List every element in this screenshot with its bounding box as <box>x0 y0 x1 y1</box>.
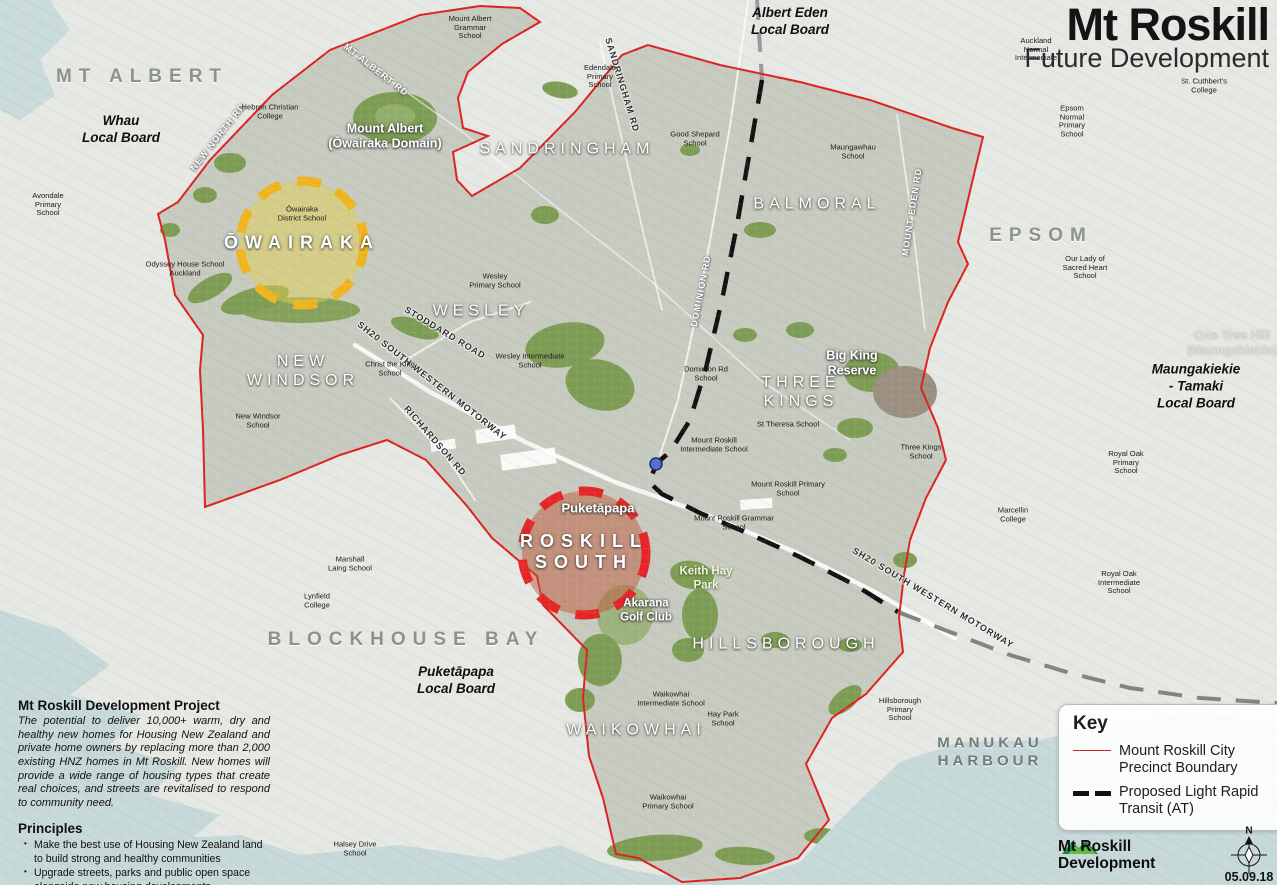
key-heading: Key <box>1073 713 1277 735</box>
lrt-stop-marker <box>650 458 662 470</box>
compass-north-label: N <box>1245 826 1252 837</box>
project-description: The potential to deliver 10,000+ warm, d… <box>18 715 270 810</box>
owairaka-focus-circle <box>240 181 364 305</box>
key-item-light-rapid-transit: Proposed Light Rapid Transit (AT) <box>1073 784 1277 817</box>
project-heading: Mt Roskill Development Project <box>18 698 270 713</box>
black-dashed-line-symbol <box>1073 791 1111 796</box>
map-canvas: MT ALBERTEPSOMBLOCKHOUSE BAYMANUKAU HARB… <box>0 0 1277 885</box>
title-block: Mt Roskill Future Development <box>1024 2 1269 72</box>
page-subtitle: Future Development <box>1024 45 1269 72</box>
key-item-label: Proposed Light Rapid Transit (AT) <box>1119 784 1277 817</box>
key-item-precinct-boundary: Mount Roskill City Precinct Boundary <box>1073 743 1277 776</box>
logo-line-2: Development <box>1058 856 1155 872</box>
roskill-south-focus-circle <box>522 491 646 615</box>
project-text-block: Mt Roskill Development Project The poten… <box>18 698 270 885</box>
principle-item: Make the best use of Housing New Zealand… <box>24 839 270 867</box>
page-title: Mt Roskill <box>1024 2 1269 47</box>
map-date: 05.09.18 <box>1225 870 1274 884</box>
principles-heading: Principles <box>18 821 270 836</box>
mt-roskill-development-logo: Mt Roskill Development <box>1058 838 1155 872</box>
principles-list: Make the best use of Housing New Zealand… <box>24 839 270 885</box>
principle-item: Upgrade streets, parks and public open s… <box>24 867 270 885</box>
key-item-label: Mount Roskill City Precinct Boundary <box>1119 743 1277 776</box>
red-line-symbol <box>1073 750 1111 751</box>
logo-line-1: Mt Roskill <box>1058 839 1155 855</box>
map-key: Key Mount Roskill City Precinct Boundary… <box>1058 704 1277 831</box>
